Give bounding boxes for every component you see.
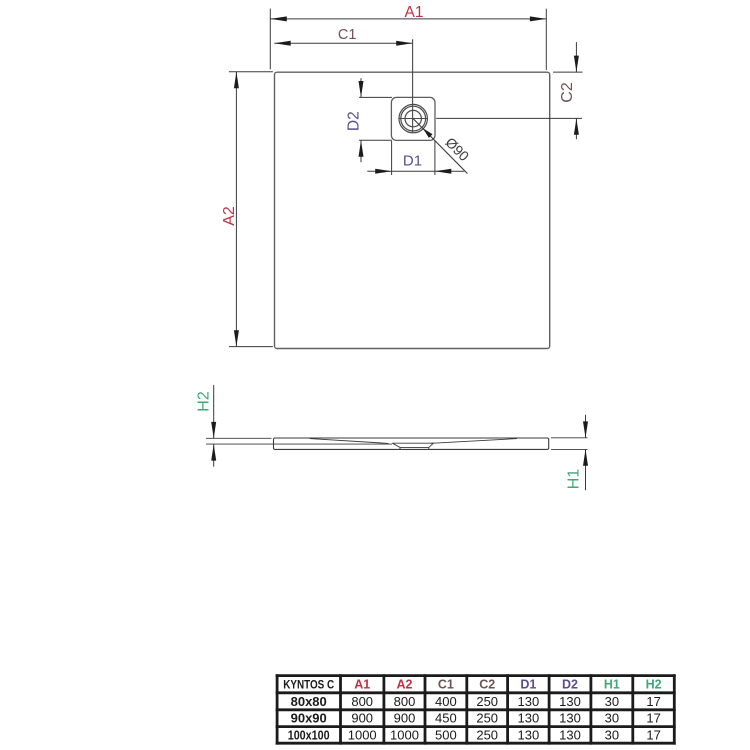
svg-text:17: 17 [646,694,660,709]
svg-text:C2: C2 [559,82,576,103]
svg-text:30: 30 [605,727,619,742]
svg-text:H2: H2 [646,678,662,692]
svg-text:250: 250 [476,727,498,742]
svg-text:400: 400 [435,694,457,709]
svg-text:100x100: 100x100 [288,728,330,742]
svg-text:C2: C2 [479,678,495,692]
svg-text:90x90: 90x90 [291,711,327,726]
svg-text:C1: C1 [338,27,357,43]
svg-text:500: 500 [435,727,457,742]
svg-text:KYNTOS C: KYNTOS C [283,678,334,692]
svg-text:C1: C1 [438,678,454,692]
svg-text:D1: D1 [403,153,422,170]
svg-text:H2: H2 [195,391,212,412]
svg-text:130: 130 [559,711,581,726]
svg-text:130: 130 [559,727,581,742]
svg-text:250: 250 [476,711,498,726]
svg-text:D2: D2 [562,678,578,692]
svg-text:900: 900 [351,711,373,726]
svg-text:H1: H1 [565,469,582,490]
svg-text:17: 17 [646,711,660,726]
svg-text:800: 800 [394,694,416,709]
svg-text:130: 130 [518,711,540,726]
svg-text:450: 450 [435,711,457,726]
svg-text:800: 800 [351,694,373,709]
svg-text:130: 130 [518,694,540,709]
svg-text:D2: D2 [346,111,363,131]
svg-text:250: 250 [476,694,498,709]
svg-text:80x80: 80x80 [291,694,327,709]
svg-text:30: 30 [605,694,619,709]
svg-text:A2: A2 [397,678,413,692]
svg-text:900: 900 [394,711,416,726]
svg-text:1000: 1000 [348,727,377,742]
svg-text:1000: 1000 [390,727,419,742]
svg-text:130: 130 [559,694,581,709]
svg-text:A1: A1 [405,4,424,21]
svg-text:A1: A1 [354,678,370,692]
svg-text:17: 17 [646,727,660,742]
svg-text:H1: H1 [604,678,620,692]
svg-text:A2: A2 [221,206,238,226]
svg-text:D1: D1 [520,678,536,692]
svg-text:30: 30 [605,711,619,726]
svg-text:130: 130 [518,727,540,742]
